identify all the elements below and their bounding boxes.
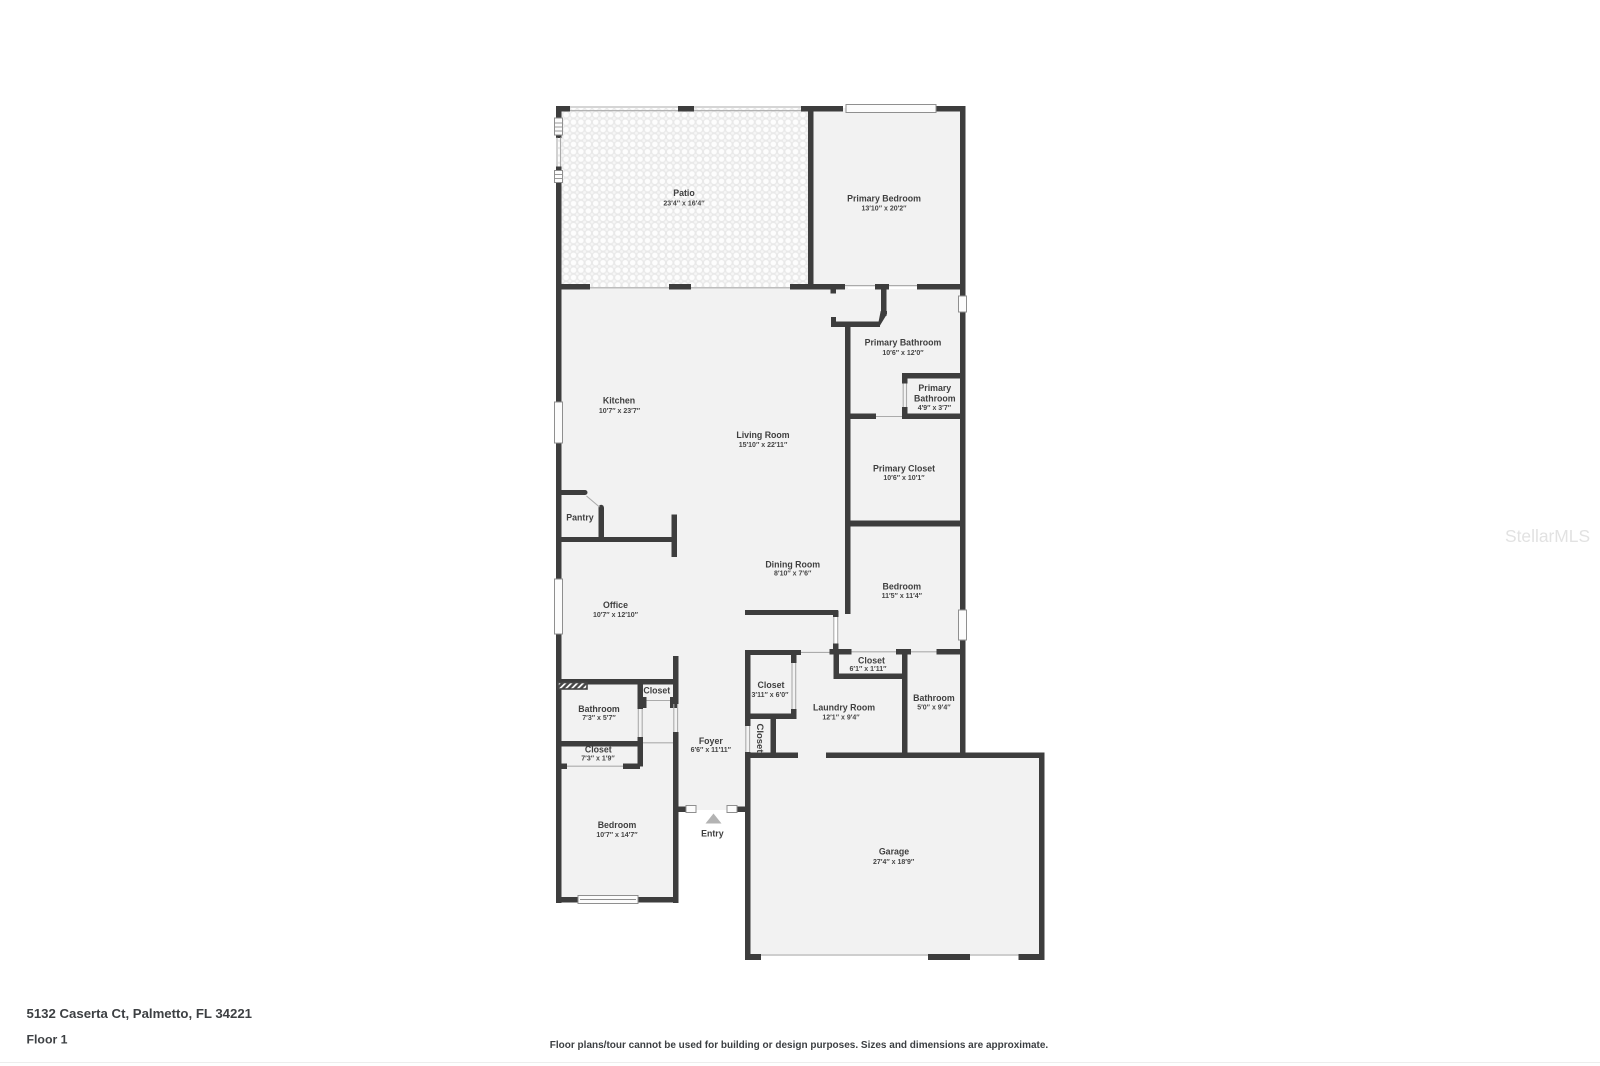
svg-text:Floor plans/tour cannot be use: Floor plans/tour cannot be used for buil… xyxy=(550,1040,1049,1051)
svg-text:Floor 1: Floor 1 xyxy=(27,1033,68,1047)
svg-text:23′4″ x 16′4″: 23′4″ x 16′4″ xyxy=(663,201,705,208)
svg-text:4′9″ x 3′7″: 4′9″ x 3′7″ xyxy=(918,405,952,412)
svg-text:12′1″ x 9′4″: 12′1″ x 9′4″ xyxy=(822,715,860,722)
svg-text:Bathroom: Bathroom xyxy=(914,394,956,404)
svg-text:Pantry: Pantry xyxy=(566,512,593,522)
svg-text:7′3″ x 5′7″: 7′3″ x 5′7″ xyxy=(582,715,616,722)
svg-text:13′10″ x 20′2″: 13′10″ x 20′2″ xyxy=(861,206,907,213)
svg-text:Garage: Garage xyxy=(879,847,909,857)
svg-text:Foyer: Foyer xyxy=(699,736,724,746)
svg-text:10′7″ x 23′7″: 10′7″ x 23′7″ xyxy=(599,408,641,415)
svg-text:Office: Office xyxy=(603,600,628,610)
svg-text:Bedroom: Bedroom xyxy=(598,820,637,830)
svg-text:Closet: Closet xyxy=(754,723,765,753)
svg-text:Living Room: Living Room xyxy=(736,430,789,440)
svg-text:Closet: Closet xyxy=(858,656,885,666)
svg-text:Bathroom: Bathroom xyxy=(913,693,955,703)
svg-text:5132 Caserta Ct, Palmetto, FL: 5132 Caserta Ct, Palmetto, FL 34221 xyxy=(27,1006,253,1021)
svg-text:Laundry Room: Laundry Room xyxy=(813,703,875,713)
svg-text:3′11″ x 6′0″: 3′11″ x 6′0″ xyxy=(752,692,790,699)
svg-text:7′3″ x 1′9″: 7′3″ x 1′9″ xyxy=(581,755,615,762)
svg-text:10′7″ x 12′10″: 10′7″ x 12′10″ xyxy=(593,612,639,619)
svg-text:10′7″ x 14′7″: 10′7″ x 14′7″ xyxy=(596,832,638,839)
svg-text:8′10″ x 7′6″: 8′10″ x 7′6″ xyxy=(774,571,812,578)
svg-text:Primary Bedroom: Primary Bedroom xyxy=(847,194,921,204)
svg-text:Bathroom: Bathroom xyxy=(578,704,620,714)
svg-text:5′0″ x 9′4″: 5′0″ x 9′4″ xyxy=(917,705,951,712)
svg-text:Kitchen: Kitchen xyxy=(603,396,635,406)
svg-text:Dining Room: Dining Room xyxy=(765,559,820,569)
svg-text:10′6″ x 12′0″: 10′6″ x 12′0″ xyxy=(882,350,924,357)
svg-text:Primary Bathroom: Primary Bathroom xyxy=(865,338,942,348)
svg-text:Patio: Patio xyxy=(673,188,695,198)
svg-text:15′10″ x 22′11″: 15′10″ x 22′11″ xyxy=(739,442,788,449)
svg-text:11′5″ x 11′4″: 11′5″ x 11′4″ xyxy=(882,593,923,600)
svg-text:Bedroom: Bedroom xyxy=(882,582,921,592)
svg-text:Primary Closet: Primary Closet xyxy=(873,464,935,474)
svg-text:10′6″ x 10′1″: 10′6″ x 10′1″ xyxy=(883,475,925,482)
svg-text:Entry: Entry xyxy=(701,829,724,839)
svg-text:Closet: Closet xyxy=(643,685,670,695)
svg-text:StellarMLS: StellarMLS xyxy=(1505,526,1590,546)
svg-text:Closet: Closet xyxy=(585,744,612,754)
svg-text:Primary: Primary xyxy=(918,383,951,393)
svg-text:6′6″ x 11′11″: 6′6″ x 11′11″ xyxy=(691,747,732,754)
svg-text:27′4″ x 18′9″: 27′4″ x 18′9″ xyxy=(873,859,915,866)
svg-text:6′1″ x 1′11″: 6′1″ x 1′11″ xyxy=(850,666,888,673)
svg-text:Closet: Closet xyxy=(758,680,785,690)
